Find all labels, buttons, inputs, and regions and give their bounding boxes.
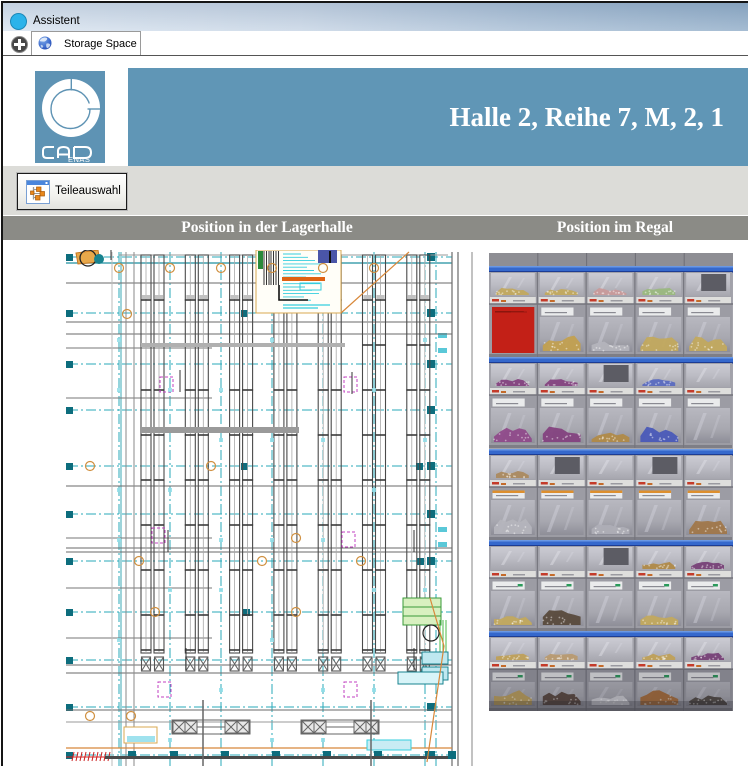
svg-text:ENAS: ENAS (68, 155, 90, 163)
